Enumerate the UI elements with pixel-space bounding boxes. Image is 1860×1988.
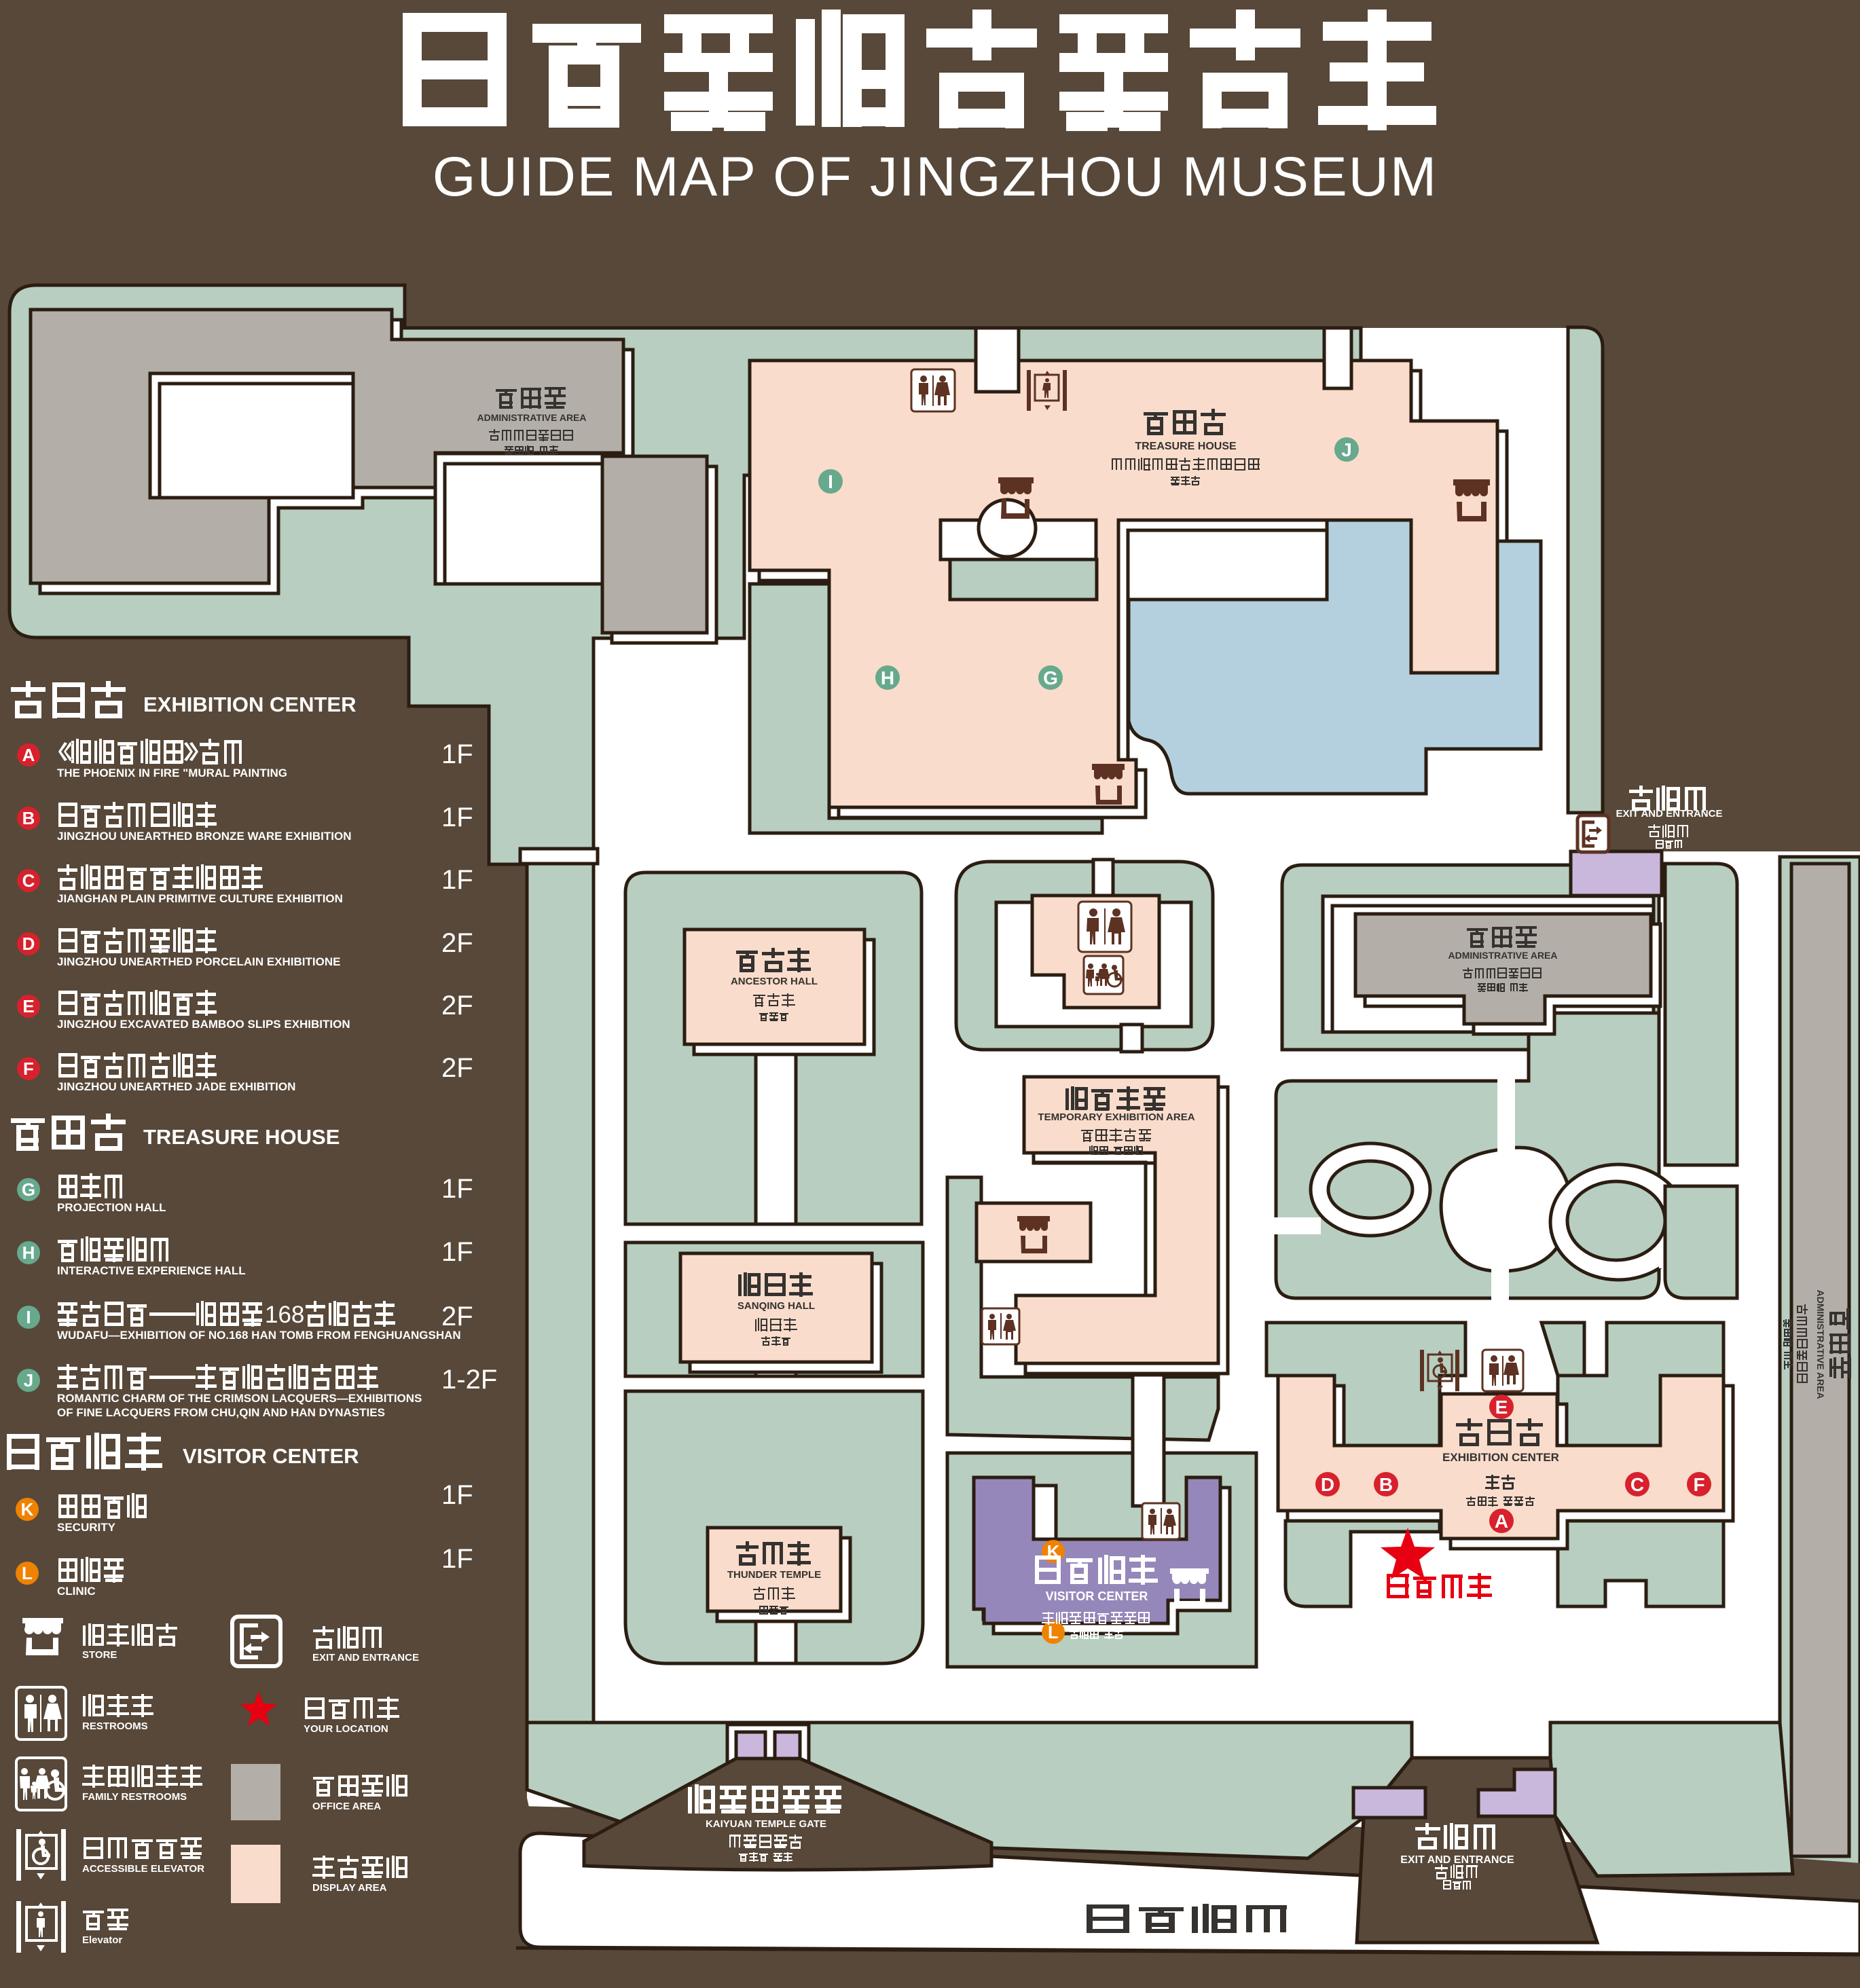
svg-text:L: L	[22, 1563, 33, 1583]
svg-text:I: I	[828, 471, 833, 492]
svg-text:B: B	[22, 808, 35, 828]
svg-text:TREASURE HOUSE: TREASURE HOUSE	[143, 1125, 340, 1149]
svg-text:ADMINISTRATIVE AREA: ADMINISTRATIVE AREA	[1448, 950, 1558, 961]
svg-text:YOUR LOCATION: YOUR LOCATION	[304, 1723, 388, 1735]
svg-text:168: 168	[265, 1302, 304, 1328]
svg-text:I: I	[26, 1307, 31, 1327]
svg-text:C: C	[1630, 1474, 1644, 1495]
svg-text:D: D	[22, 934, 35, 954]
svg-text:A: A	[22, 745, 35, 765]
svg-text:ACCESSIBLE ELEVATOR: ACCESSIBLE ELEVATOR	[82, 1863, 204, 1875]
svg-text:G: G	[1043, 667, 1058, 688]
svg-text:H: H	[22, 1242, 35, 1263]
svg-text:VISITOR CENTER: VISITOR CENTER	[1046, 1589, 1148, 1603]
svg-text:RESTROOMS: RESTROOMS	[82, 1720, 148, 1732]
svg-text:JINGZHOU UNEARTHED JADE EXHIBI: JINGZHOU UNEARTHED JADE EXHIBITION	[57, 1080, 295, 1093]
svg-text:ANCESTOR HALL: ANCESTOR HALL	[731, 976, 818, 987]
svg-text:E: E	[1495, 1397, 1508, 1418]
svg-text:EXIT AND ENTRANCE: EXIT AND ENTRANCE	[312, 1652, 419, 1663]
svg-text:THE PHOENIX IN FIRE "MURAL PAI: THE PHOENIX IN FIRE "MURAL PAINTING	[57, 767, 287, 779]
svg-text:1F: 1F	[441, 1544, 473, 1574]
svg-text:GUIDE MAP OF JINGZHOU MUSEUM: GUIDE MAP OF JINGZHOU MUSEUM	[433, 146, 1438, 208]
svg-text:L: L	[1048, 1622, 1059, 1642]
svg-text:JINGZHOU UNEARTHED PORCELAIN E: JINGZHOU UNEARTHED PORCELAIN EXHIBITIONE	[57, 955, 340, 968]
svg-text:CLINIC: CLINIC	[57, 1585, 96, 1598]
svg-text:JINGZHOU EXCAVATED BAMBOO SLIP: JINGZHOU EXCAVATED BAMBOO SLIPS EXHIBITI…	[57, 1018, 350, 1031]
svg-text:2F: 2F	[441, 991, 473, 1020]
svg-text:EXHIBITION CENTER: EXHIBITION CENTER	[1442, 1451, 1559, 1464]
svg-text:1F: 1F	[441, 1480, 473, 1510]
svg-text:SECURITY: SECURITY	[57, 1521, 116, 1534]
svg-text:C: C	[22, 870, 35, 891]
svg-text:2F: 2F	[441, 928, 473, 958]
svg-text:THUNDER TEMPLE: THUNDER TEMPLE	[727, 1569, 821, 1581]
svg-text:B: B	[1379, 1474, 1393, 1495]
svg-text:J: J	[24, 1370, 33, 1391]
svg-text:EXIT AND ENTRANCE: EXIT AND ENTRANCE	[1616, 808, 1723, 820]
svg-text:FAMILY RESTROOMS: FAMILY RESTROOMS	[82, 1791, 187, 1803]
svg-text:OFFICE AREA: OFFICE AREA	[312, 1801, 381, 1812]
svg-text:ADMINISTRATIVE AREA: ADMINISTRATIVE AREA	[477, 412, 587, 423]
svg-text:1F: 1F	[441, 803, 473, 832]
svg-text:ROMANTIC CHARM OF THE CRIMSON: ROMANTIC CHARM OF THE CRIMSON LACQUERS—E…	[57, 1392, 422, 1405]
svg-text:E: E	[22, 996, 34, 1016]
svg-text:Elevator: Elevator	[82, 1934, 122, 1946]
svg-text:OF FINE LACQUERS FROM CHU,QIN: OF FINE LACQUERS FROM CHU,QIN AND HAN DY…	[57, 1406, 385, 1419]
svg-text:1F: 1F	[441, 1174, 473, 1204]
svg-text:INTERACTIVE EXPERIENCE HALL: INTERACTIVE EXPERIENCE HALL	[57, 1264, 246, 1277]
svg-text:EXHIBITION CENTER: EXHIBITION CENTER	[143, 693, 356, 716]
svg-text:WUDAFU—EXHIBITION OF NO.168 HA: WUDAFU—EXHIBITION OF NO.168 HAN TOMB FRO…	[57, 1329, 461, 1342]
svg-text:TREASURE HOUSE: TREASURE HOUSE	[1135, 441, 1237, 452]
svg-text:F: F	[1693, 1474, 1704, 1495]
svg-text:EXIT AND ENTRANCE: EXIT AND ENTRANCE	[1400, 1854, 1514, 1866]
svg-text:SANQING HALL: SANQING HALL	[737, 1300, 815, 1312]
svg-text:PROJECTION HALL: PROJECTION HALL	[57, 1201, 166, 1214]
svg-text:ADMINISTRATIVE AREA: ADMINISTRATIVE AREA	[1815, 1290, 1826, 1399]
svg-text:F: F	[23, 1059, 34, 1079]
svg-text:VISITOR CENTER: VISITOR CENTER	[183, 1444, 359, 1468]
svg-text:1F: 1F	[441, 739, 473, 769]
svg-text:STORE: STORE	[82, 1649, 117, 1661]
svg-text:1F: 1F	[441, 865, 473, 895]
svg-text:JINGZHOU UNEARTHED BRONZE WARE: JINGZHOU UNEARTHED BRONZE WARE EXHIBITIO…	[57, 830, 352, 843]
svg-text:A: A	[1495, 1511, 1508, 1532]
svg-text:JIANGHAN PLAIN PRIMITIVE CULTU: JIANGHAN PLAIN PRIMITIVE CULTURE EXHIBIT…	[57, 892, 343, 905]
svg-text:2F: 2F	[441, 1053, 473, 1083]
svg-text:2F: 2F	[441, 1302, 473, 1331]
svg-text:TEMPORARY EXHIBITION AREA: TEMPORARY EXHIBITION AREA	[1038, 1111, 1195, 1123]
svg-text:DISPLAY AREA: DISPLAY AREA	[312, 1882, 387, 1894]
svg-text:J: J	[1341, 439, 1352, 460]
svg-text:D: D	[1321, 1474, 1334, 1495]
svg-text:1-2F: 1-2F	[441, 1365, 497, 1395]
svg-text:H: H	[881, 667, 894, 688]
svg-text:1F: 1F	[441, 1237, 473, 1267]
svg-text:K: K	[21, 1499, 34, 1520]
svg-text:KAIYUAN TEMPLE GATE: KAIYUAN TEMPLE GATE	[706, 1818, 826, 1830]
svg-text:G: G	[22, 1179, 35, 1200]
